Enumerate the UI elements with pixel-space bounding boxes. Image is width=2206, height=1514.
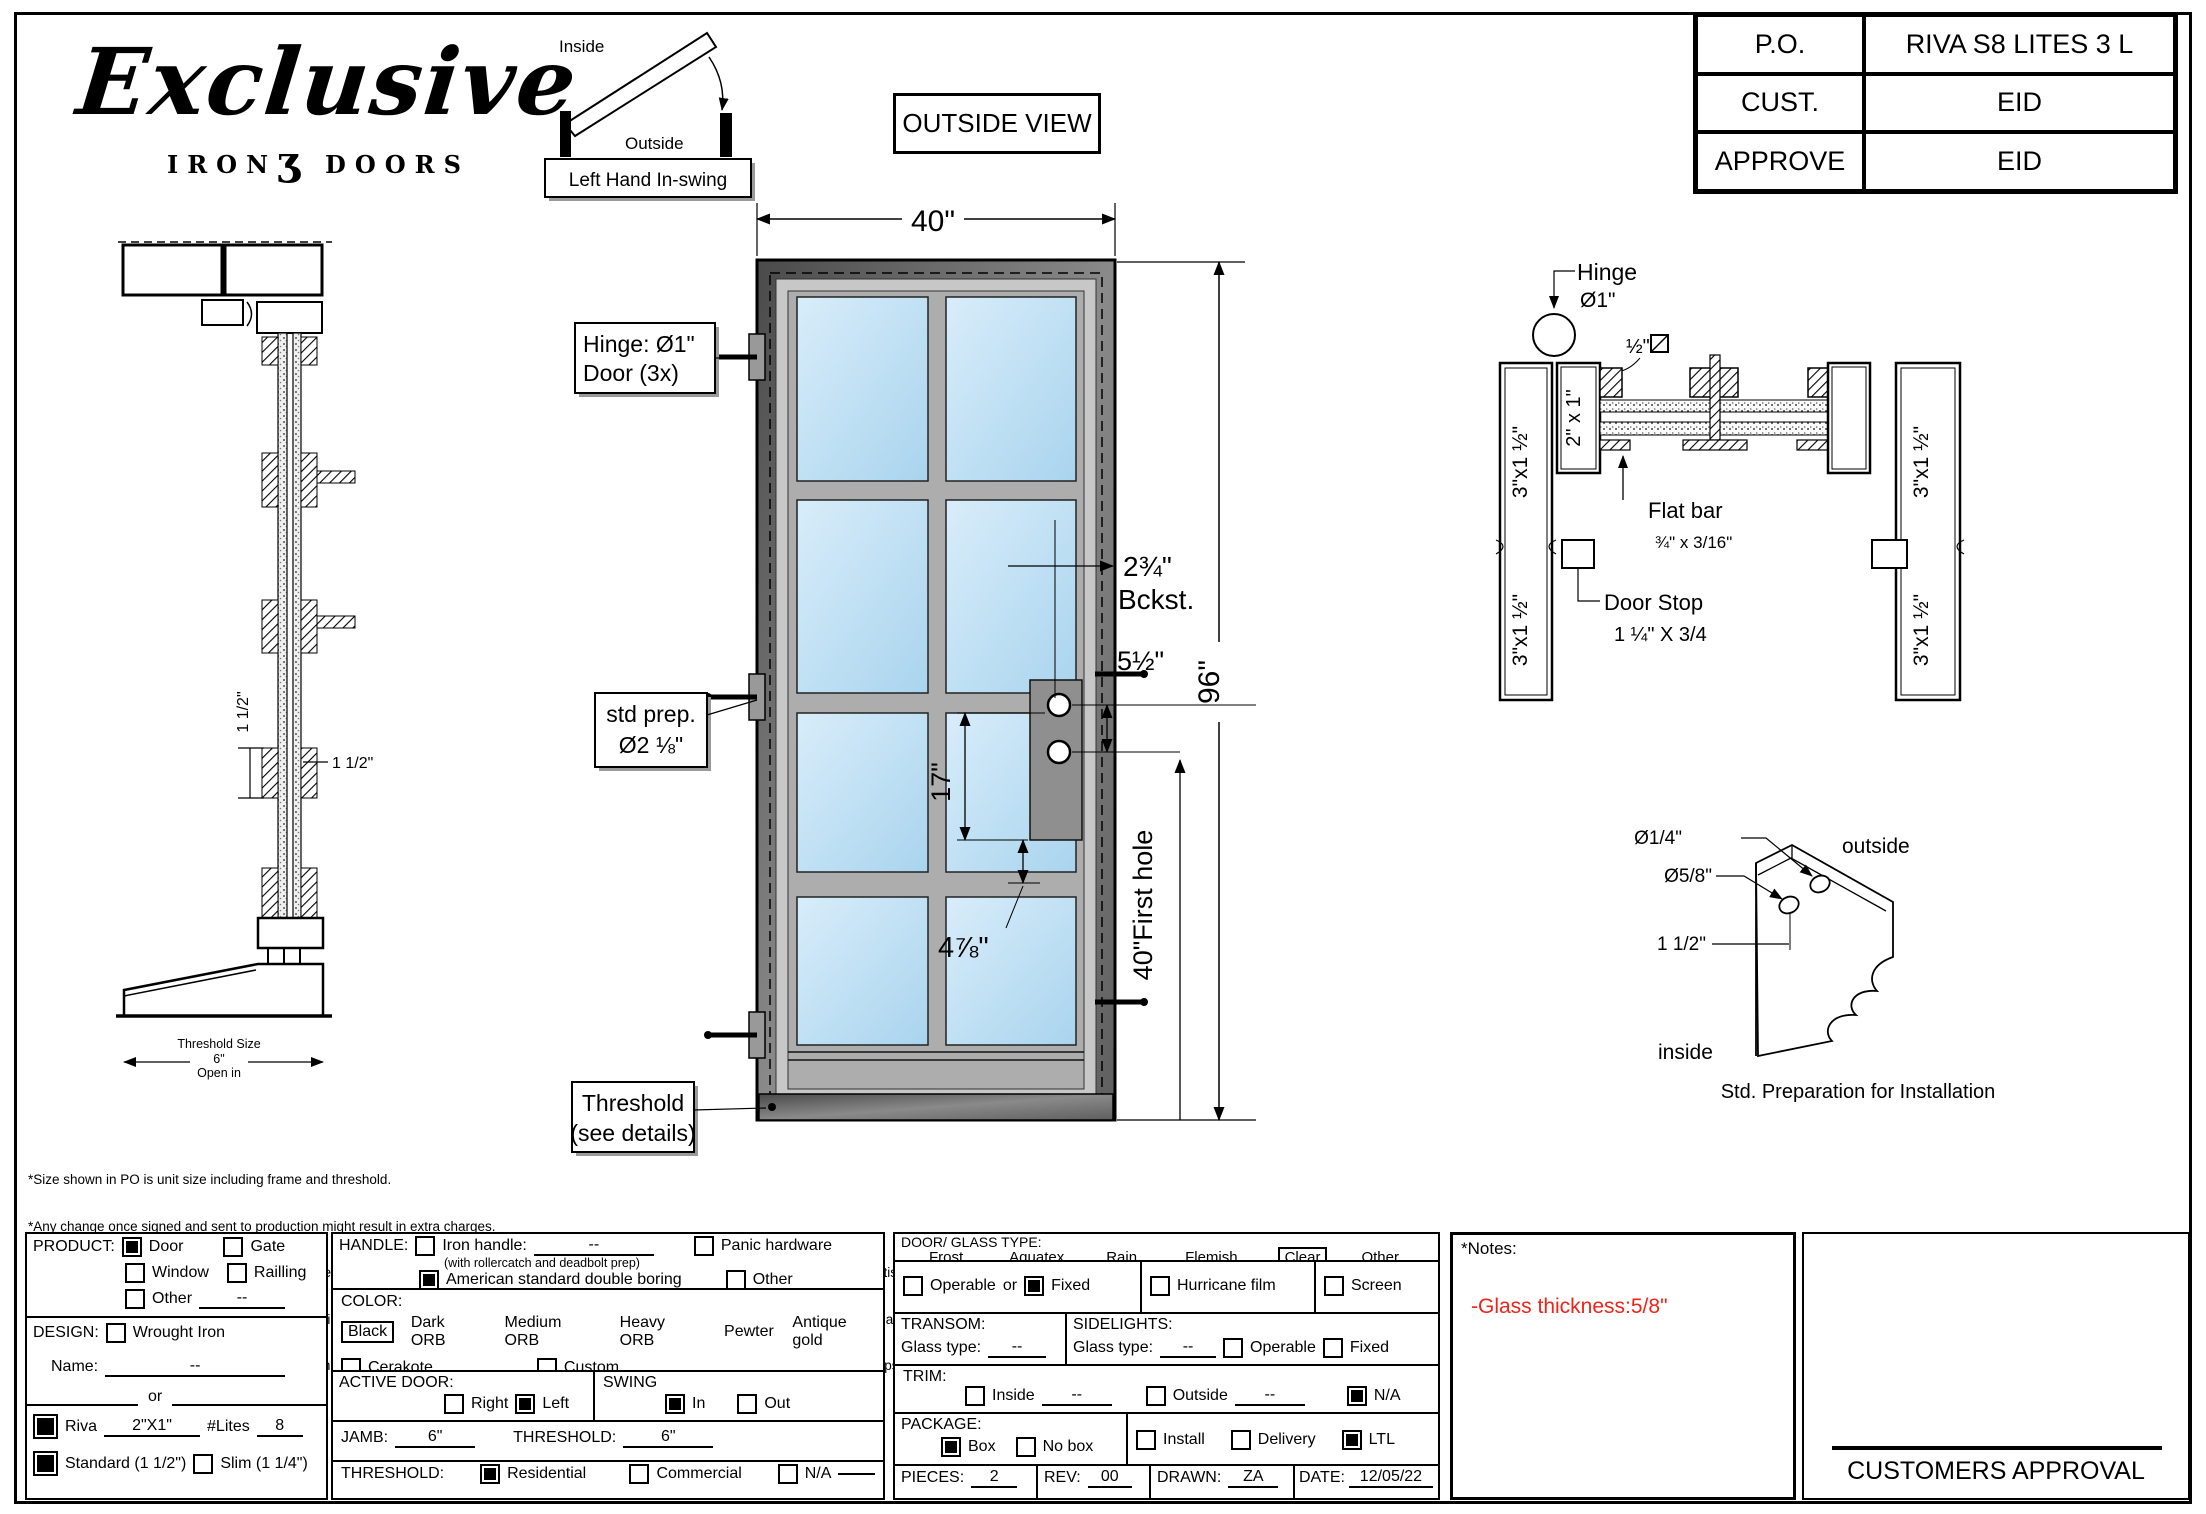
sidelights-section: SIDELIGHTS: Glass type: -- Operable Fixe… <box>1065 1312 1440 1366</box>
trim-section: TRIM: Inside -- Outside -- N/A <box>893 1364 1440 1414</box>
design-label: DESIGN: <box>33 1324 99 1342</box>
logo-flourish-icon: ʒ <box>277 138 300 185</box>
commercial-checkbox[interactable] <box>629 1464 649 1484</box>
po-value[interactable]: RIVA S8 LITES 3 L <box>1864 15 2175 74</box>
spec-sheet: Exclusive IRON ʒ DOORS Inside Outside Le… <box>0 0 2206 1514</box>
operable-label: Operable <box>930 1277 996 1295</box>
sidelights-glass-label: Glass type: <box>1073 1339 1153 1357</box>
approve-label: APPROVE <box>1696 132 1864 191</box>
backset-dim: 2¾" <box>1123 551 1172 582</box>
product-gate-checkbox[interactable] <box>223 1237 243 1257</box>
hole-spacing-dim: 5½" <box>1117 646 1164 676</box>
product-railing-checkbox[interactable] <box>227 1263 247 1283</box>
screen-checkbox[interactable] <box>1324 1276 1344 1296</box>
panic-checkbox[interactable] <box>694 1236 714 1256</box>
height-dim: 96" <box>1193 660 1226 704</box>
asdb-checkbox[interactable] <box>419 1270 439 1290</box>
threshold-na-input[interactable] <box>838 1473 875 1475</box>
sidelights-label: SIDELIGHTS: <box>1073 1316 1432 1334</box>
trim-na-checkbox[interactable] <box>1347 1386 1367 1406</box>
threshold-na-label: N/A <box>805 1465 832 1483</box>
rev-input[interactable]: 00 <box>1088 1468 1132 1488</box>
threshold-size-label: Threshold Size <box>177 1037 260 1051</box>
riva-checkbox[interactable] <box>33 1414 58 1439</box>
header-tube-left <box>123 245 222 295</box>
fixed-label: Fixed <box>1051 1277 1090 1295</box>
threshold-leader-dot <box>768 1103 776 1111</box>
threshold-na-checkbox[interactable] <box>778 1464 798 1484</box>
product-section: PRODUCT: Door Gate Window Railling Other… <box>25 1232 328 1318</box>
residential-checkbox[interactable] <box>480 1464 500 1484</box>
door-stop-size: 1 ¼" X 3/4 <box>1614 624 1707 646</box>
swing-arc-arrow <box>709 57 723 110</box>
threshold-open-label: Open in <box>197 1066 241 1080</box>
hinge-block-a <box>202 300 243 325</box>
notes-value[interactable]: -Glass thickness:5/8" <box>1471 1295 1785 1319</box>
lites-label: #Lites <box>207 1418 250 1436</box>
operable-fixed-cell: Operable or Fixed <box>893 1260 1142 1314</box>
design-wrought-label: Wrought Iron <box>133 1324 225 1342</box>
product-other-input[interactable]: -- <box>199 1289 285 1309</box>
hurricane-label: Hurricane film <box>1177 1277 1276 1295</box>
sidelights-fixed-label: Fixed <box>1350 1339 1389 1357</box>
rev-cell: REV: 00 <box>1036 1464 1151 1500</box>
pieces-input[interactable]: 2 <box>971 1468 1017 1488</box>
product-other-checkbox[interactable] <box>125 1289 145 1309</box>
hurricane-cell: Hurricane film <box>1140 1260 1316 1314</box>
hole-dia-quarter: Ø1/4" <box>1634 828 1682 849</box>
standard-label: Standard (1 1/2") <box>65 1455 186 1473</box>
inside-label: inside <box>1658 1041 1713 1064</box>
screen-cell: Screen <box>1314 1260 1440 1314</box>
section-hinge-label: Hinge <box>1577 259 1637 285</box>
active-right-checkbox[interactable] <box>444 1394 464 1414</box>
door-bottom-rail <box>759 1094 1113 1120</box>
package-box-checkbox[interactable] <box>941 1437 961 1457</box>
sidelights-fixed-checkbox[interactable] <box>1323 1338 1343 1358</box>
fixed-checkbox[interactable] <box>1024 1276 1044 1296</box>
threshold-body <box>258 918 323 948</box>
threshold-section: THRESHOLD: Residential Commercial N/A <box>331 1460 885 1500</box>
handle-other-checkbox[interactable] <box>726 1270 746 1290</box>
jamb-threshold-input[interactable]: 6" <box>623 1428 713 1448</box>
slim-label: Slim (1 1/4") <box>220 1455 307 1473</box>
title-block: P.O. RIVA S8 LITES 3 L CUST. EID APPROVE… <box>1693 12 2178 194</box>
sidelights-operable-checkbox[interactable] <box>1223 1338 1243 1358</box>
approval-section: CUSTOMERS APPROVAL <box>1802 1232 2190 1500</box>
install-caption: Std. Preparation for Installation <box>1721 1081 1996 1103</box>
trim-label: TRIM: <box>903 1368 1430 1386</box>
ltl-checkbox[interactable] <box>1342 1430 1362 1450</box>
trim-outside-label: Outside <box>1173 1387 1228 1405</box>
cust-value[interactable]: EID <box>1864 74 2175 133</box>
color-option[interactable]: Heavy ORB <box>620 1314 698 1350</box>
trim-outside-input[interactable]: -- <box>1235 1386 1305 1406</box>
product-door-checkbox[interactable] <box>122 1237 142 1257</box>
color-option[interactable]: Pewter <box>724 1323 774 1341</box>
iron-handle-note: (with rollercatch and deadbolt prep) <box>444 1256 877 1270</box>
product-label: PRODUCT: <box>33 1238 115 1256</box>
drawn-label: DRAWN: <box>1157 1469 1221 1487</box>
hole-offset-dim: 4⅞" <box>938 932 989 964</box>
strike-stile-tube <box>1828 363 1870 473</box>
package-nobox-label: No box <box>1043 1438 1094 1456</box>
trim-inside-label: Inside <box>992 1387 1035 1405</box>
dim-1half-vert: 1 1/2" <box>235 691 252 732</box>
handle-hole <box>1048 741 1070 763</box>
product-other-label: Other <box>152 1290 192 1308</box>
trim-na-label: N/A <box>1374 1387 1401 1405</box>
logo-word-iron: IRON <box>167 150 277 179</box>
date-input[interactable]: 12/05/22 <box>1349 1468 1433 1488</box>
jamb-section-detail: Hinge Ø1" 3"x1 ½" 3"x1 ½" 2" x 1" ½" <box>1490 250 2190 720</box>
outside-view-label: OUTSIDE VIEW <box>893 93 1101 154</box>
date-cell: DATE: 12/05/22 <box>1293 1464 1440 1500</box>
left-jamb-size-lower: 3"x1 ½" <box>1509 594 1532 666</box>
color-option[interactable]: Dark ORB <box>411 1314 479 1350</box>
date-label: DATE: <box>1299 1469 1345 1487</box>
swing-section: SWING In Out <box>593 1370 885 1422</box>
stile-size-label: 2" x 1" <box>1563 389 1585 447</box>
jamb-threshold-label: THRESHOLD: <box>513 1429 616 1447</box>
product-window-checkbox[interactable] <box>125 1263 145 1283</box>
iron-handle-label: Iron handle: <box>442 1237 527 1255</box>
threshold-size-value: 6" <box>213 1052 224 1066</box>
screen-label: Screen <box>1351 1277 1402 1295</box>
swing-out-label: Out <box>764 1395 790 1413</box>
swing-in-label: In <box>692 1395 705 1413</box>
hinge-callout-line2: Door (3x) <box>583 360 679 386</box>
door-front-view: 40" 96" Hinge: Ø1" Door (3x) std prep. Ø… <box>540 170 1300 1170</box>
lock-height-dim: 17" <box>926 762 956 802</box>
glass-type-section: DOOR/ GLASS TYPE: Frost Aquatex Rain Fle… <box>893 1232 1440 1262</box>
install-checkbox[interactable] <box>1136 1430 1156 1450</box>
design-section: DESIGN: Wrought Iron Name: -- <box>25 1316 328 1406</box>
approval-label: CUSTOMERS APPROVAL <box>1804 1457 2188 1486</box>
drawn-cell: DRAWN: ZA <box>1149 1464 1295 1500</box>
riva-size-input[interactable]: 2"X1" <box>104 1417 200 1437</box>
swing-left-jamb <box>560 111 571 157</box>
pieces-label: PIECES: <box>901 1469 964 1487</box>
active-right-label: Right <box>471 1395 508 1413</box>
delivery-checkbox[interactable] <box>1231 1430 1251 1450</box>
iron-handle-checkbox[interactable] <box>415 1236 435 1256</box>
jamb-bar-inner <box>293 333 301 918</box>
notes-label: *Notes: <box>1461 1239 1785 1259</box>
package-box-label: Box <box>968 1438 996 1456</box>
asdb-label: American standard double boring <box>446 1271 682 1289</box>
left-jamb-size-upper: 3"x1 ½" <box>1509 426 1532 498</box>
approve-value[interactable]: EID <box>1864 132 2175 191</box>
hinge-squiggle <box>247 302 252 326</box>
jamb-section: JAMB: 6" THRESHOLD: 6" <box>331 1420 885 1462</box>
ltl-label: LTL <box>1369 1431 1395 1449</box>
standard-checkbox[interactable] <box>33 1451 58 1476</box>
disclaimer-line: *Size shown in PO is unit size including… <box>28 1172 1138 1188</box>
active-left-checkbox[interactable] <box>515 1394 535 1414</box>
handle-label: HANDLE: <box>339 1237 408 1255</box>
hinge-block-b <box>257 302 322 333</box>
handle-section: HANDLE: Iron handle: -- Panic hardware (… <box>331 1232 885 1290</box>
right-jamb-size-lower: 3"x1 ½" <box>1910 594 1933 666</box>
product-door-label: Door <box>149 1238 184 1256</box>
outside-label: outside <box>1842 835 1910 858</box>
delivery-cell: Install Delivery LTL <box>1126 1412 1440 1466</box>
pieces-cell: PIECES: 2 <box>893 1464 1038 1500</box>
trim-outside-checkbox[interactable] <box>1146 1386 1166 1406</box>
lites-input[interactable]: 8 <box>257 1417 303 1437</box>
product-gate-label: Gate <box>250 1238 285 1256</box>
prep-line1: std prep. <box>606 701 696 727</box>
first-hole-dim: 40"First hole <box>1128 830 1158 981</box>
riva-label: Riva <box>65 1418 97 1436</box>
deadbolt-hole <box>1048 694 1070 716</box>
glass-stop-blocks <box>262 337 355 918</box>
package-nobox-checkbox[interactable] <box>1016 1437 1036 1457</box>
transom-label: TRANSOM: <box>901 1316 1059 1334</box>
edge-distance: 1 1/2" <box>1657 934 1706 955</box>
jamb-bar-outer <box>278 333 287 918</box>
color-option[interactable]: Medium ORB <box>505 1314 594 1350</box>
transom-section: TRANSOM: Glass type: -- <box>893 1312 1067 1366</box>
swing-inside-label: Inside <box>559 37 604 56</box>
jamb-input[interactable]: 6" <box>395 1428 475 1448</box>
hinge-barrel-circle <box>1533 314 1575 356</box>
install-label: Install <box>1163 1431 1205 1449</box>
header-tube-right <box>225 245 322 295</box>
threshold-callout-line1: Threshold <box>582 1090 684 1116</box>
active-door-label: ACTIVE DOOR: <box>339 1374 587 1392</box>
operable-or-label: or <box>1003 1277 1017 1295</box>
threshold-label: THRESHOLD: <box>341 1465 444 1483</box>
active-left-label: Left <box>542 1395 569 1413</box>
prep-line2: Ø2 ⅛" <box>619 732 683 758</box>
notes-section: *Notes: -Glass thickness:5/8" <box>1450 1232 1796 1500</box>
po-label: P.O. <box>1696 15 1864 74</box>
operable-checkbox[interactable] <box>903 1276 923 1296</box>
side-section-view: 1 1/2" 1 1/2" Threshold Size 6" Open in <box>80 230 500 1090</box>
logo-word-doors: DOORS <box>325 150 470 179</box>
signature-line[interactable] <box>1832 1446 2162 1450</box>
residential-label: Residential <box>507 1465 586 1483</box>
product-railing-label: Railling <box>254 1264 306 1282</box>
product-window-label: Window <box>152 1264 209 1282</box>
door-stop-left <box>1562 540 1594 568</box>
door-stop-label: Door Stop <box>1604 590 1703 615</box>
hurricane-checkbox[interactable] <box>1150 1276 1170 1296</box>
hole-dia-fiveeighths: Ø5/8" <box>1664 866 1712 887</box>
delivery-label: Delivery <box>1258 1431 1316 1449</box>
glazing-bar-size: ½" <box>1626 336 1650 358</box>
design-name-input[interactable]: -- <box>105 1357 285 1377</box>
right-jamb-size-upper: 3"x1 ½" <box>1910 426 1933 498</box>
hinge-callout-line1: Hinge: Ø1" <box>583 331 695 357</box>
series-section: Riva 2"X1" #Lites 8 Standard (1 1/2") Sl… <box>25 1404 328 1500</box>
color-section: COLOR: Black Dark ORB Medium ORB Heavy O… <box>331 1288 885 1372</box>
section-hinge-dia: Ø1" <box>1580 289 1615 312</box>
handle-other-label: Other <box>753 1271 793 1289</box>
drawn-input[interactable]: ZA <box>1228 1468 1278 1488</box>
swing-outside-label: Outside <box>625 134 684 153</box>
slim-checkbox[interactable] <box>193 1454 213 1474</box>
swing-label: SWING <box>603 1374 875 1392</box>
door-slab-section <box>1600 355 1830 450</box>
dim-1half-horiz: 1 1/2" <box>332 755 373 772</box>
transom-glass-input[interactable]: -- <box>988 1338 1046 1358</box>
sidelights-operable-label: Operable <box>1250 1339 1316 1357</box>
commercial-label: Commercial <box>656 1465 741 1483</box>
jamb-label: JAMB: <box>341 1429 388 1447</box>
transom-glass-label: Glass type: <box>901 1339 981 1357</box>
cust-label: CUST. <box>1696 74 1864 133</box>
door-stop-right <box>1872 540 1907 568</box>
backset-label: Bckst. <box>1118 584 1194 615</box>
width-dim: 40" <box>911 205 955 238</box>
sidelights-glass-input[interactable]: -- <box>1160 1338 1216 1358</box>
install-prep-detail: Ø1/4" Ø5/8" 1 1/2" outside inside Std. P… <box>1640 795 2110 1115</box>
trim-inside-checkbox[interactable] <box>965 1386 985 1406</box>
flat-bar-label: Flat bar <box>1648 498 1723 523</box>
package-section: PACKAGE: Box No box <box>893 1412 1128 1466</box>
design-name-label: Name: <box>51 1358 98 1376</box>
iron-handle-input[interactable]: -- <box>534 1236 654 1256</box>
swing-out-checkbox[interactable] <box>737 1394 757 1414</box>
design-wrought-checkbox[interactable] <box>106 1323 126 1343</box>
package-label: PACKAGE: <box>901 1416 1120 1434</box>
panic-label: Panic hardware <box>721 1237 832 1255</box>
design-or-label: or <box>138 1388 172 1406</box>
flat-bar-size: ¾" x 3/16" <box>1655 533 1732 552</box>
color-black-option[interactable]: Black <box>341 1321 394 1343</box>
trim-inside-input[interactable]: -- <box>1042 1386 1112 1406</box>
active-door-section: ACTIVE DOOR: Right Left <box>331 1370 595 1422</box>
logo-script: Exclusive <box>72 28 523 136</box>
swing-in-checkbox[interactable] <box>665 1394 685 1414</box>
color-label: COLOR: <box>341 1293 875 1311</box>
swing-right-jamb <box>720 113 732 157</box>
color-option[interactable]: Antique gold <box>792 1314 875 1350</box>
rev-label: REV: <box>1044 1469 1081 1487</box>
